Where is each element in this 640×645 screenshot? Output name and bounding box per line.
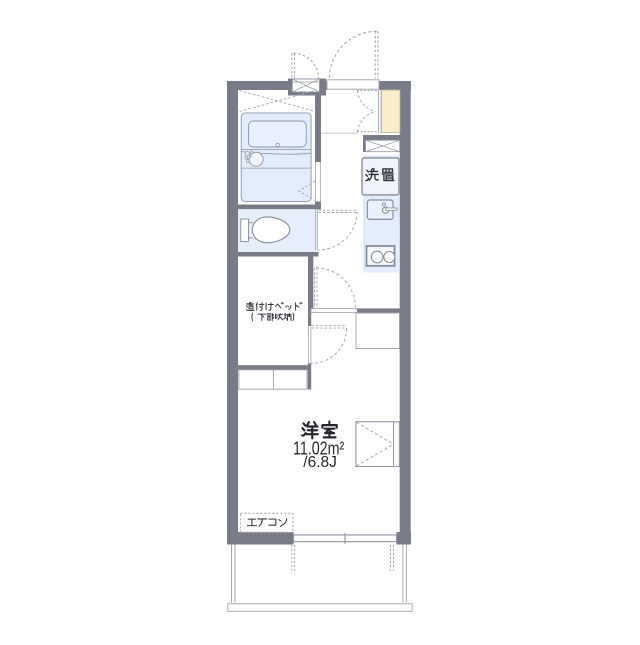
svg-text:/6.8J: /6.8J [303,454,337,471]
